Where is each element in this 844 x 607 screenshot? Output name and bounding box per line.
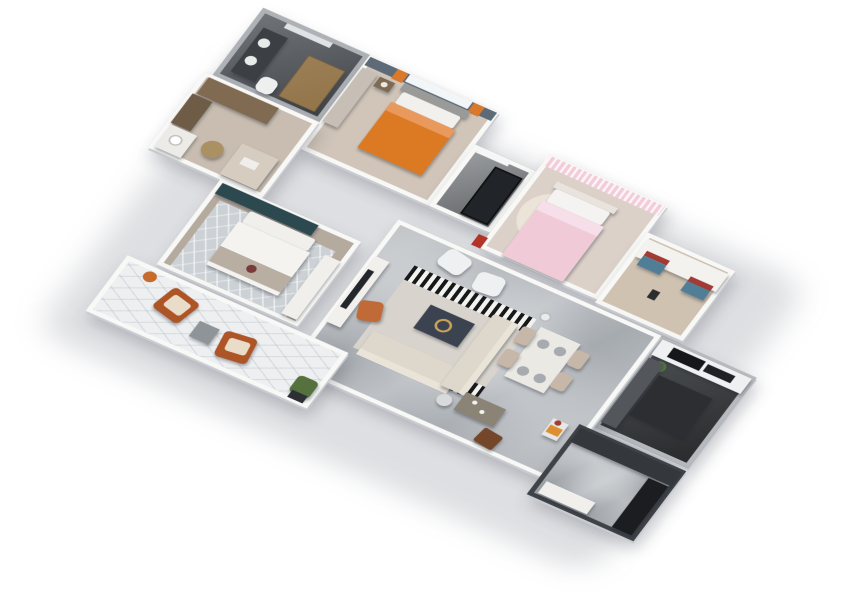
living-accent-chair-orange xyxy=(356,300,385,323)
plan-canvas xyxy=(2,1,843,591)
